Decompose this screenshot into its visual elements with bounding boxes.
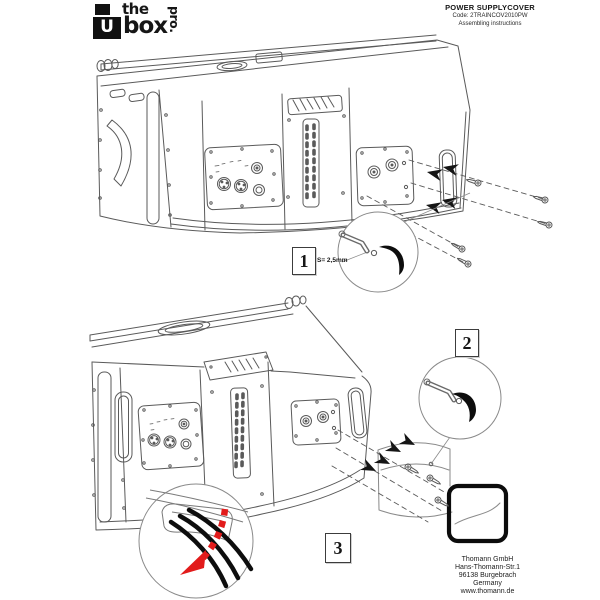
step1-number-box: 1 (292, 247, 316, 275)
city-address: 96138 Burgebrach (405, 572, 570, 580)
brand-swoosh (107, 120, 131, 186)
speaker-cabinet-top-view (97, 35, 553, 268)
amp-module-2 (211, 385, 264, 502)
input-connector-panel (204, 144, 283, 210)
power-connector-panel-2 (291, 387, 368, 445)
amp-module-top (204, 352, 273, 380)
step2-detail-callout (419, 357, 501, 464)
website: www.thomann.de (405, 588, 570, 596)
country: Germany (405, 580, 570, 588)
step2-number: 2 (463, 333, 472, 354)
assembly-instruction-sheet: U the box pro. POWER SUPPLYCOVER Code: 2… (0, 0, 600, 600)
step3-detail-callout (139, 484, 253, 598)
company-name: Thomann GmbH (405, 556, 570, 564)
step1-detail-callout (338, 193, 470, 292)
street-address: Hans-Thomann-Str.1 (405, 564, 570, 572)
step1-number: 1 (300, 251, 309, 272)
step2-number-box: 2 (455, 329, 479, 357)
manufacturer-address: Thomann GmbH Hans-Thomann-Str.1 96138 Bu… (405, 556, 570, 596)
rigging-bar-2 (90, 296, 362, 372)
left-side-panel (99, 89, 172, 227)
step3-number: 3 (334, 538, 343, 559)
power-supply-cover (378, 443, 506, 541)
technical-drawing (0, 0, 600, 600)
step3-number-box: 3 (325, 533, 351, 563)
power-connector-panel (356, 146, 414, 206)
amp-module (287, 95, 346, 207)
left-side-panel-2 (92, 368, 132, 522)
hex-key-size-label: S= 2,5mm (317, 257, 348, 264)
input-connector-panel-2 (138, 402, 204, 470)
